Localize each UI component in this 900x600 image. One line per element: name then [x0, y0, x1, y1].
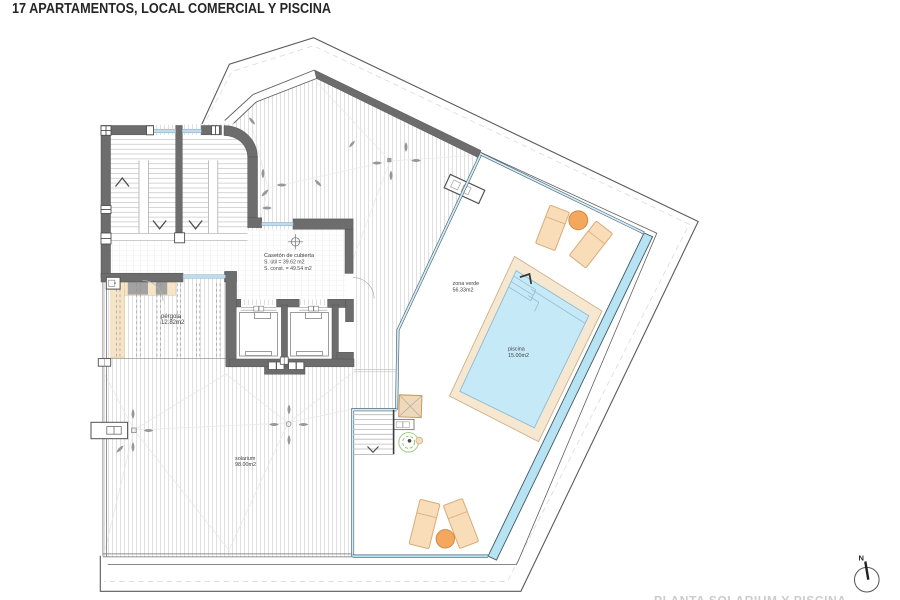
svg-text:solarium: solarium	[235, 456, 256, 462]
svg-text:56.33m2: 56.33m2	[453, 287, 474, 293]
svg-text:12.82m2: 12.82m2	[161, 320, 185, 326]
svg-text:piscina: piscina	[508, 347, 525, 353]
svg-text:98.00m2: 98.00m2	[235, 462, 256, 468]
svg-text:N: N	[859, 554, 864, 563]
svg-text:S. const. = 49.54 m2: S. const. = 49.54 m2	[264, 266, 312, 272]
svg-text:17 APARTAMENTOS, LOCAL COMERCI: 17 APARTAMENTOS, LOCAL COMERCIAL Y PISCI…	[12, 0, 331, 17]
svg-text:S. útil = 39.62 m2: S. útil = 39.62 m2	[264, 259, 305, 265]
svg-text:PLANTA SOLARIUM Y PISCINA: PLANTA SOLARIUM Y PISCINA	[654, 594, 847, 600]
svg-text:15.00m2: 15.00m2	[508, 353, 529, 359]
svg-text:zona verde: zona verde	[453, 281, 480, 287]
svg-text:pérgola: pérgola	[161, 314, 182, 320]
svg-text:Casetón de cubierta: Casetón de cubierta	[264, 253, 315, 259]
